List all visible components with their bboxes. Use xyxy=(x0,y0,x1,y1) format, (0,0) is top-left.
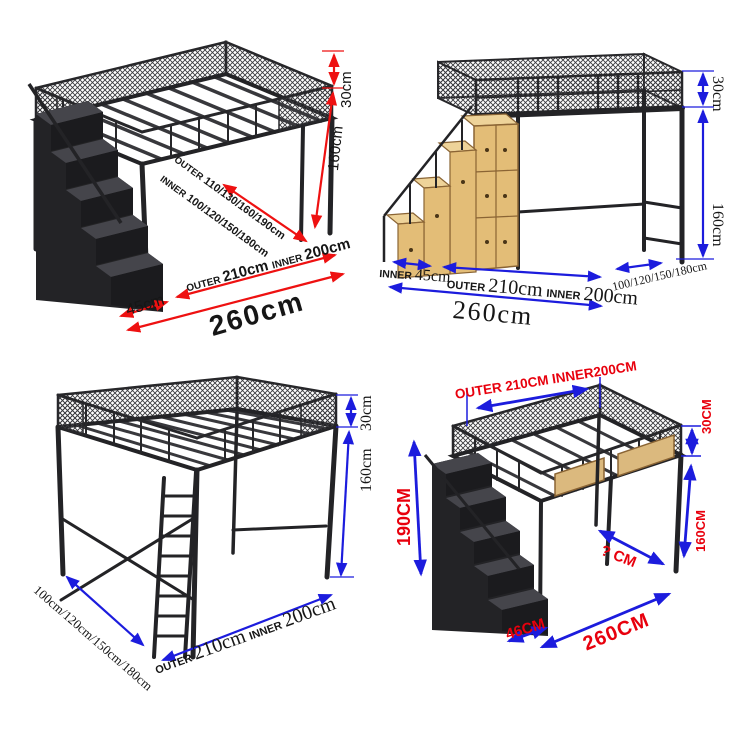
p1-rail-height-label: 30cm xyxy=(339,71,356,108)
panel-top-right: 30cm 160cm INNER45cm OUTER210cmINNER200c… xyxy=(368,0,736,368)
p2-wooden-stair-cabinet xyxy=(384,106,518,278)
p2-stair-value: 45cm xyxy=(414,266,451,286)
p4-wood-side-board-right xyxy=(618,435,674,476)
p2-length-inner-prefix: INNER xyxy=(546,288,581,303)
p2-clearance-height-label: 160cm xyxy=(708,203,726,247)
p4-bed-drawing xyxy=(368,368,736,736)
panel-bottom-right: OUTER 210CM INNER200CM 190CM 30CM 160CM … xyxy=(368,368,736,736)
p2-bed-drawing xyxy=(368,0,736,368)
p2-stair-prefix: INNER xyxy=(379,269,412,283)
p4-rail-height-label: 30CM xyxy=(700,399,714,434)
p4-total-height-label: 190CM xyxy=(395,488,415,546)
panel-top-left: 30cm 160cm OUTER110/130/160/190cm INNER1… xyxy=(0,0,368,368)
panel-bottom-left: 30cm 160cm 100cm/120cm/150cm/180cm OUTER… xyxy=(0,368,368,736)
p4-clearance-height-label: 160CM xyxy=(694,510,708,552)
loft-bed-dimension-sheet: 30cm 160cm OUTER110/130/160/190cm INNER1… xyxy=(0,0,736,736)
p3-bed-drawing xyxy=(0,368,368,736)
p2-length-outer-prefix: OUTER xyxy=(446,279,485,294)
p2-rail-height-label: 30cm xyxy=(708,76,726,112)
p4-storage-stairs xyxy=(425,453,548,636)
p3-ladder xyxy=(154,472,196,657)
p2-length-outer-value: 210cm xyxy=(487,275,543,302)
